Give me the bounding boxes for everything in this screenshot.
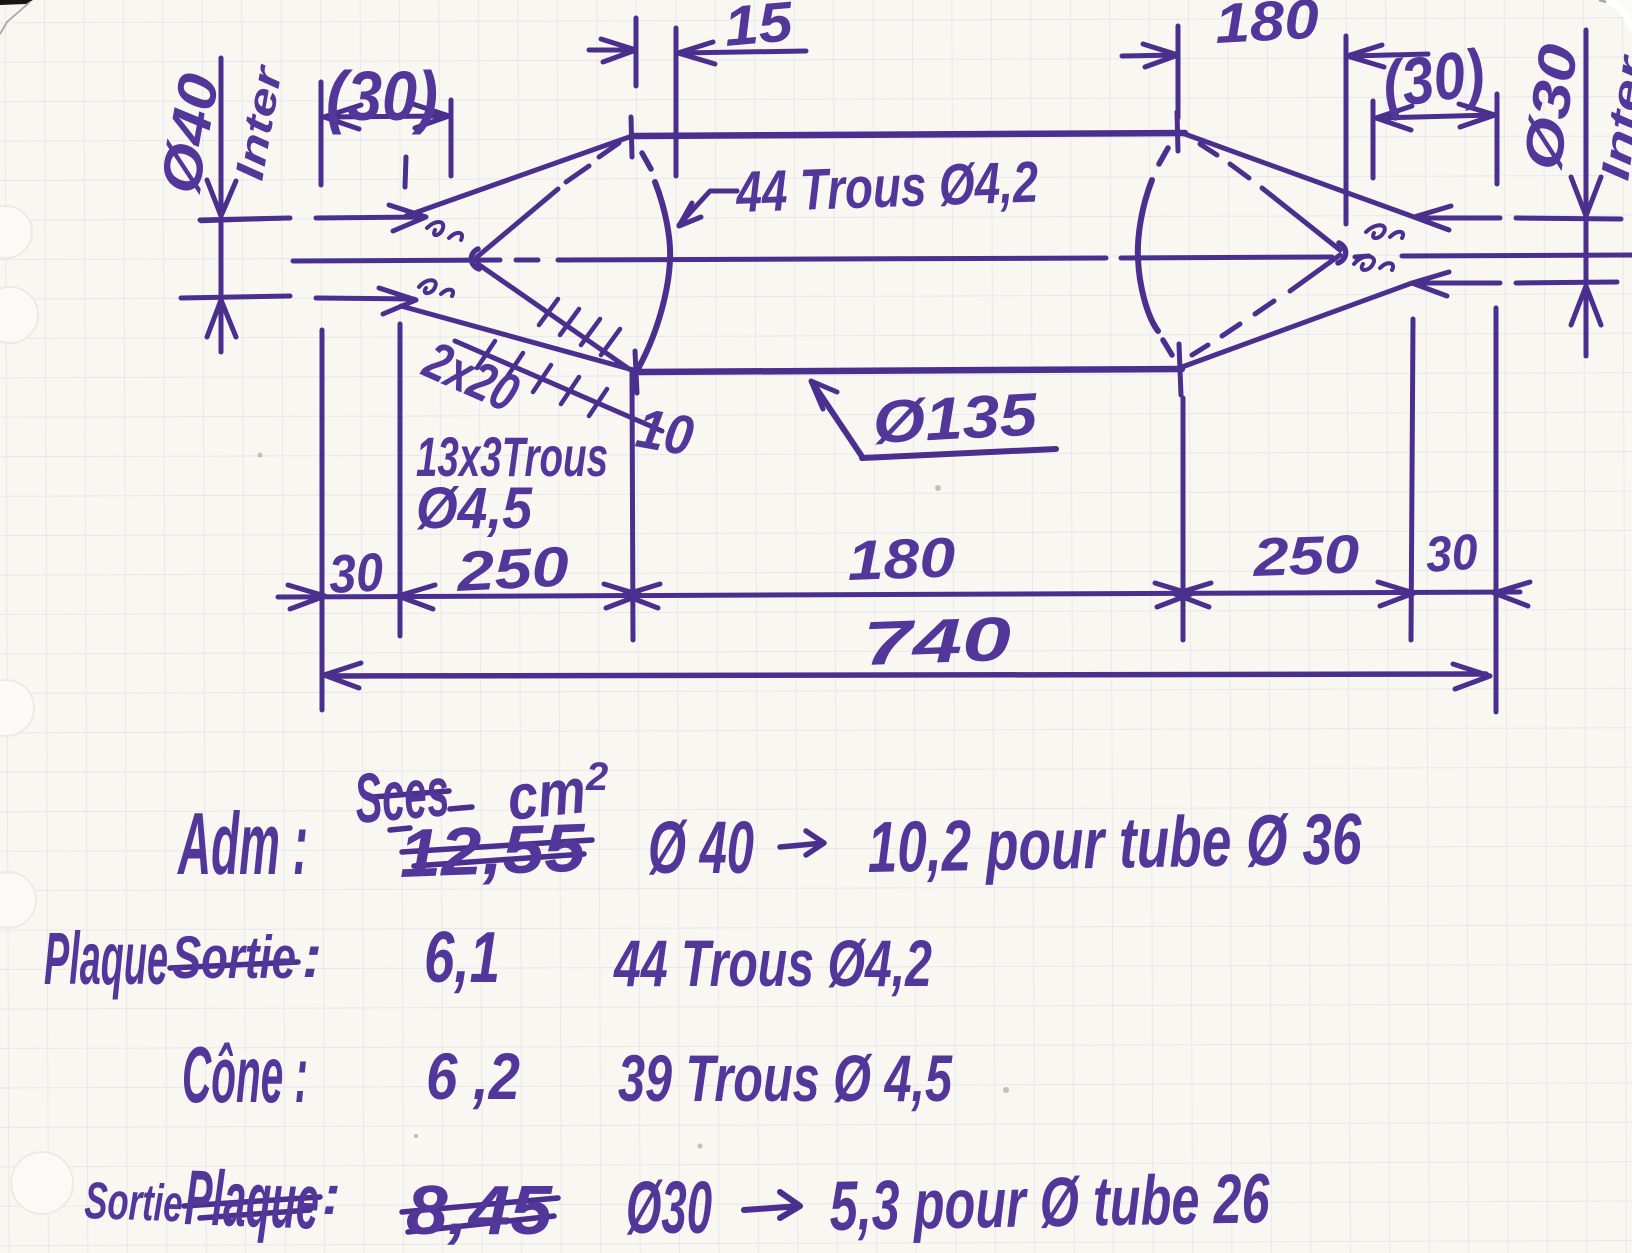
svg-text:Adm :: Adm : bbox=[177, 794, 308, 893]
svg-text:5,3 pour Ø tube 26: 5,3 pour Ø tube 26 bbox=[829, 1159, 1271, 1245]
svg-text:39 Trous Ø 4,5: 39 Trous Ø 4,5 bbox=[618, 1041, 953, 1115]
svg-text:10: 10 bbox=[632, 396, 698, 468]
svg-text:15: 15 bbox=[722, 0, 796, 58]
svg-text:Plaque: Plaque bbox=[44, 917, 168, 1000]
svg-text:12,55: 12,55 bbox=[398, 810, 588, 892]
svg-text:(30): (30) bbox=[326, 57, 438, 135]
svg-text:180: 180 bbox=[846, 525, 956, 592]
svg-text:(30): (30) bbox=[1378, 34, 1489, 121]
svg-text:2: 2 bbox=[585, 755, 608, 799]
svg-text:Ø 40: Ø 40 bbox=[648, 806, 754, 889]
svg-text:250: 250 bbox=[454, 534, 570, 603]
svg-text:Plaque: Plaque bbox=[183, 1153, 320, 1246]
svg-text:250: 250 bbox=[1251, 524, 1360, 588]
svg-text:44 Trous Ø4,2: 44 Trous Ø4,2 bbox=[734, 149, 1039, 225]
svg-text:180: 180 bbox=[1213, 0, 1320, 55]
svg-text:Ø135: Ø135 bbox=[871, 380, 1040, 456]
svg-text:Sortie: Sortie bbox=[172, 924, 296, 991]
svg-text:30: 30 bbox=[1424, 523, 1480, 583]
svg-text:6 ,2: 6 ,2 bbox=[426, 1039, 520, 1113]
svg-text:740: 740 bbox=[862, 605, 1012, 679]
svg-text:Ø30: Ø30 bbox=[626, 1166, 712, 1249]
svg-text:Cône :: Cône : bbox=[182, 1030, 308, 1119]
svg-text:Ø4,5: Ø4,5 bbox=[416, 476, 533, 541]
svg-text:8,45: 8,45 bbox=[406, 1171, 553, 1249]
svg-text:30: 30 bbox=[327, 542, 384, 605]
svg-text:10,2 pour tube Ø 36: 10,2 pour tube Ø 36 bbox=[867, 799, 1363, 888]
svg-text:44 Trous Ø4,2: 44 Trous Ø4,2 bbox=[613, 926, 933, 1000]
svg-text::: : bbox=[322, 1163, 341, 1226]
svg-text::: : bbox=[302, 923, 322, 990]
svg-text:6,1: 6,1 bbox=[424, 918, 500, 998]
svg-text:Sortie: Sortie bbox=[84, 1172, 184, 1233]
